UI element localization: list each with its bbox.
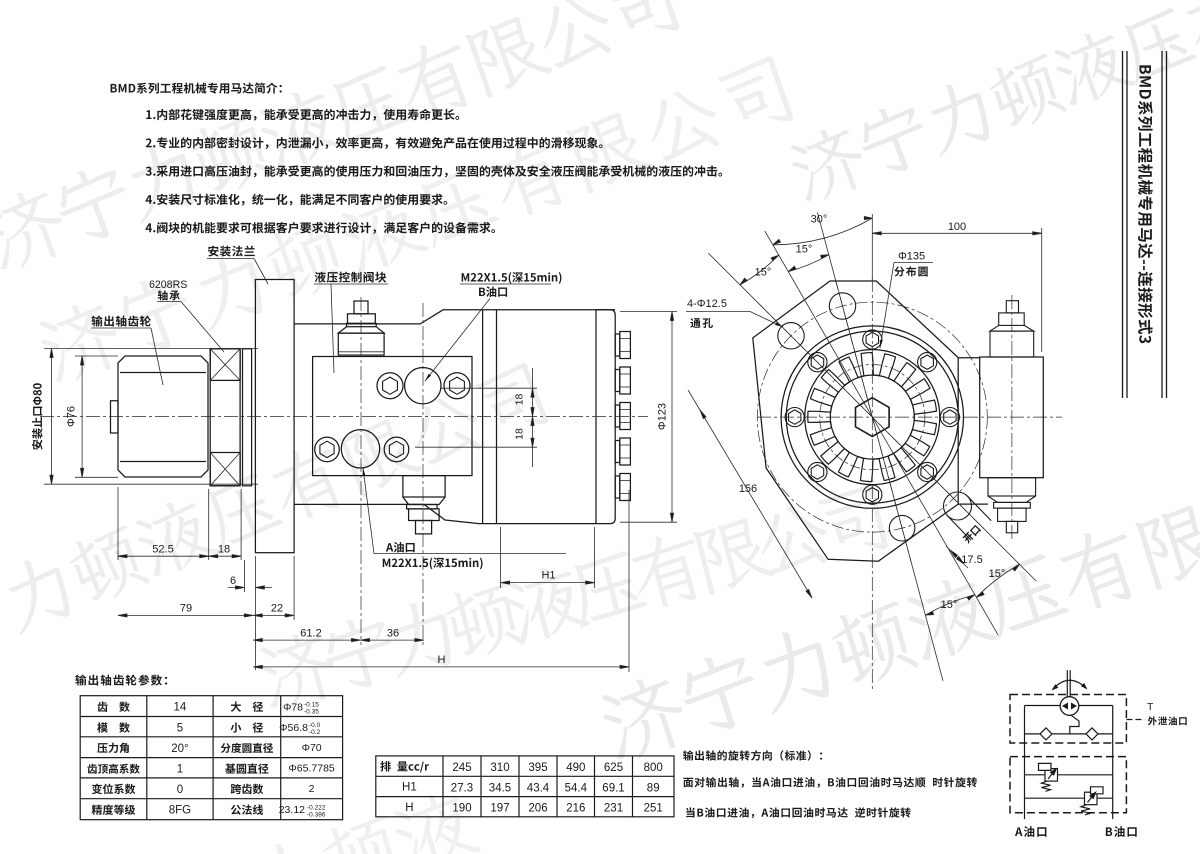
svg-text:20°: 20°	[171, 743, 188, 755]
svg-text:36: 36	[387, 628, 399, 640]
svg-text:231: 231	[604, 803, 623, 815]
svg-text:15°: 15°	[989, 568, 1006, 580]
svg-text:-0.386: -0.386	[307, 812, 326, 819]
svg-text:Φ123: Φ123	[657, 403, 669, 430]
svg-text:-0.0: -0.0	[309, 722, 321, 729]
svg-text:27.3: 27.3	[451, 782, 473, 794]
svg-text:34.5: 34.5	[489, 782, 511, 794]
svg-text:-0.2: -0.2	[309, 729, 321, 736]
svg-text:89: 89	[647, 782, 660, 794]
svg-text:490: 490	[566, 762, 585, 774]
svg-text:79: 79	[180, 603, 192, 615]
svg-text:6: 6	[230, 575, 236, 587]
svg-text:69.1: 69.1	[602, 782, 624, 794]
svg-text:54.4: 54.4	[565, 782, 588, 794]
svg-text:52.5: 52.5	[152, 544, 173, 556]
svg-text:22: 22	[271, 603, 283, 615]
svg-text:18: 18	[514, 394, 526, 406]
svg-text:216: 216	[566, 803, 585, 815]
svg-text:14: 14	[174, 702, 187, 714]
svg-text:2: 2	[309, 783, 315, 795]
svg-text:61.2: 61.2	[300, 628, 321, 640]
svg-text:T: T	[1147, 701, 1154, 713]
svg-text:-0.222: -0.222	[307, 805, 326, 812]
svg-text:15°: 15°	[941, 599, 958, 611]
svg-text:-0.15: -0.15	[304, 702, 319, 709]
svg-text:Φ65.7785: Φ65.7785	[288, 763, 334, 775]
svg-text:43.4: 43.4	[527, 782, 550, 794]
svg-text:245: 245	[452, 762, 471, 774]
svg-text:0: 0	[177, 784, 183, 796]
svg-text:8FG: 8FG	[169, 805, 191, 817]
svg-text:156: 156	[739, 483, 757, 495]
svg-text:197: 197	[490, 803, 509, 815]
svg-text:5: 5	[177, 723, 183, 735]
svg-text:H: H	[438, 654, 446, 666]
svg-text:100: 100	[948, 221, 966, 233]
svg-text:251: 251	[644, 803, 663, 815]
svg-text:-0.35: -0.35	[304, 709, 319, 716]
svg-text:18: 18	[218, 544, 230, 556]
svg-text:23.12: 23.12	[279, 804, 305, 816]
svg-text:30°: 30°	[811, 214, 828, 226]
svg-text:625: 625	[604, 762, 623, 774]
svg-text:H1: H1	[402, 782, 417, 794]
svg-text:15°: 15°	[755, 267, 772, 279]
svg-text:Φ135: Φ135	[898, 251, 925, 263]
svg-text:800: 800	[644, 762, 663, 774]
svg-text:15°: 15°	[796, 244, 813, 256]
svg-text:6208RS: 6208RS	[149, 279, 187, 291]
svg-text:4-Φ12.5: 4-Φ12.5	[687, 298, 727, 310]
svg-text:395: 395	[528, 762, 547, 774]
svg-text:18: 18	[514, 428, 526, 440]
svg-text:Φ76: Φ76	[66, 406, 78, 427]
svg-text:310: 310	[490, 762, 509, 774]
svg-text:206: 206	[528, 803, 547, 815]
svg-text:Φ78: Φ78	[283, 702, 303, 714]
svg-text:H: H	[405, 802, 413, 814]
svg-text:17.5: 17.5	[961, 554, 982, 566]
svg-text:Φ70: Φ70	[302, 742, 322, 754]
svg-text:H1: H1	[541, 570, 555, 582]
svg-text:Φ56.8: Φ56.8	[279, 722, 308, 734]
svg-text:190: 190	[452, 803, 471, 815]
svg-text:1: 1	[177, 764, 183, 776]
